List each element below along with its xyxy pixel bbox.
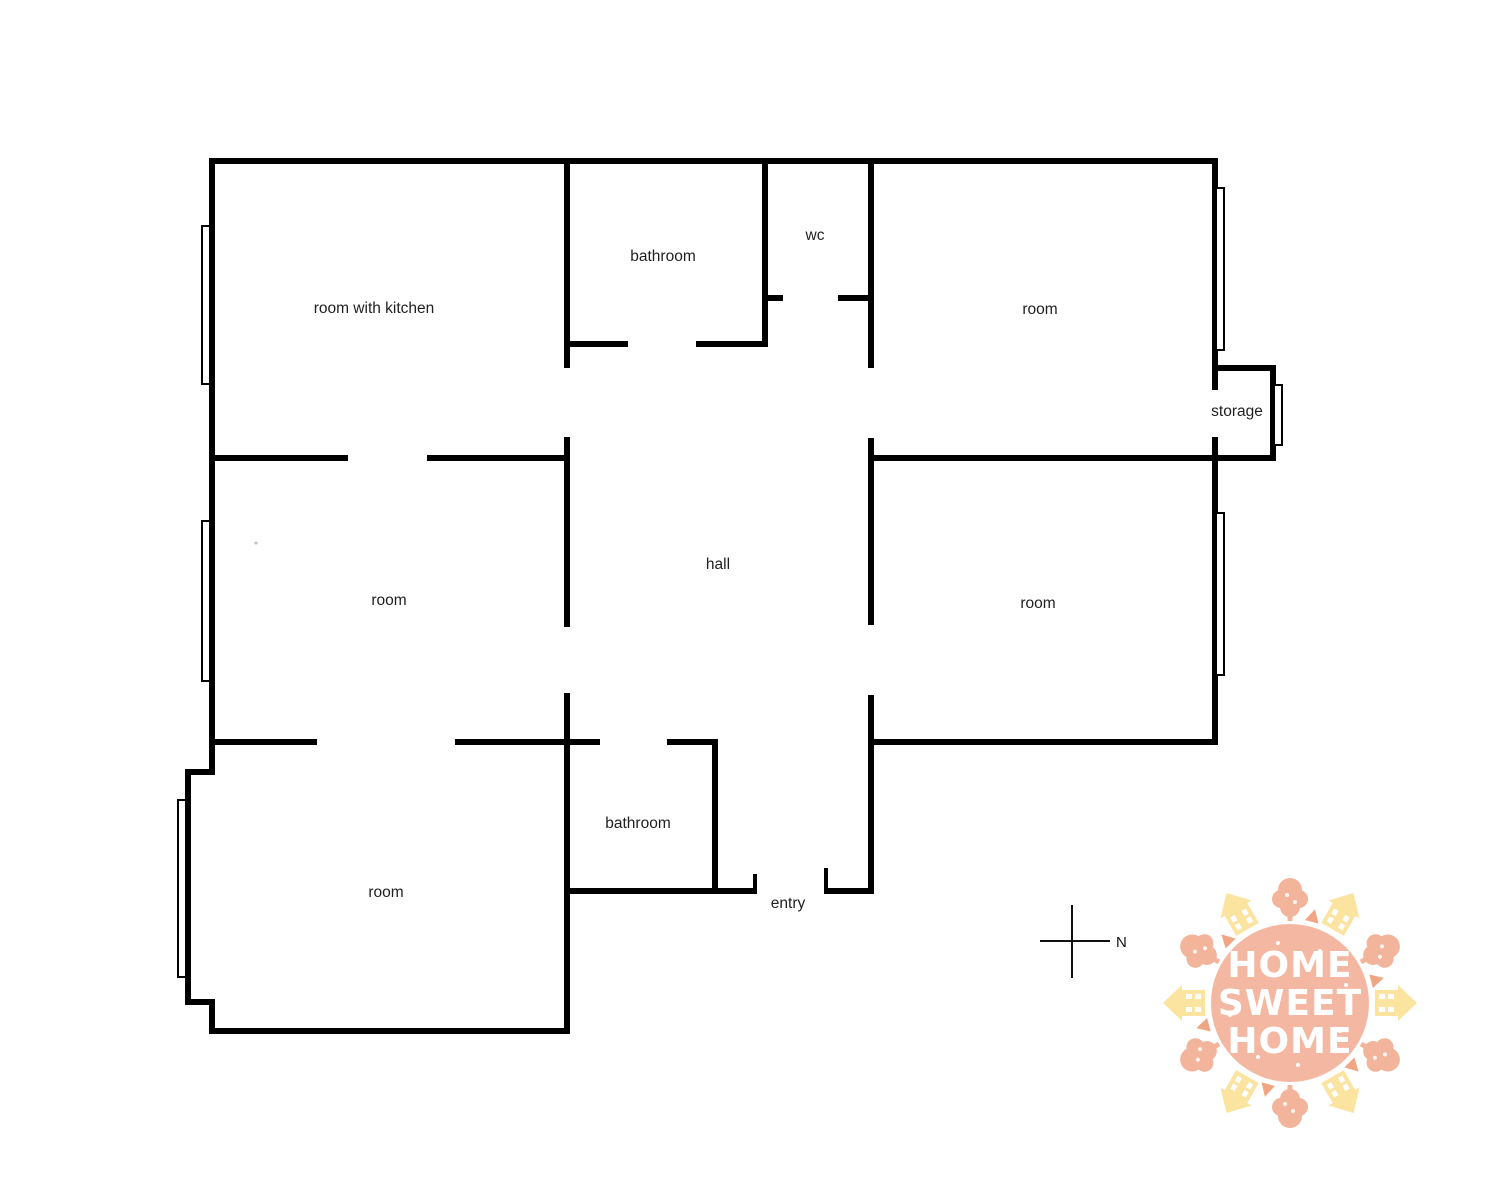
wall-storage-top	[1212, 365, 1276, 371]
house-icon	[1211, 884, 1263, 938]
wall-mid-left-b	[427, 455, 570, 461]
label-hall: hall	[706, 556, 730, 573]
wall-entry-bottom-left	[564, 888, 757, 894]
label-wc: wc	[805, 227, 825, 244]
wall-wc-door-left	[762, 295, 783, 301]
walls	[185, 158, 1276, 1034]
sun-ray-icon	[1258, 1082, 1275, 1098]
window-storage	[1274, 385, 1282, 445]
wall-bottom-right-room	[868, 739, 1218, 745]
wall-bathroom-top-bottom-right	[696, 341, 768, 347]
room-labels: room with kitchen bathroom wc room stora…	[314, 227, 1263, 912]
label-room-middle-right: room	[1020, 595, 1055, 612]
wall-hall-right-1	[868, 158, 874, 368]
wall-bathroom-top-bottom-left	[564, 341, 628, 347]
compass-north-label: N	[1116, 934, 1127, 951]
window-room-bottom-left	[178, 800, 186, 977]
house-icon	[1163, 985, 1205, 1021]
logo-line-1: HOME	[1227, 945, 1352, 986]
wall-wc-left	[762, 158, 768, 347]
compass: N	[1040, 905, 1127, 978]
wall-low-b	[455, 739, 600, 745]
house-icon	[1317, 884, 1369, 938]
label-storage: storage	[1211, 403, 1263, 420]
wall-low-a	[209, 739, 317, 745]
wall-mid-right	[868, 455, 1276, 461]
window-kitchen	[202, 226, 210, 384]
sun-ray-icon	[1194, 1018, 1210, 1035]
entry-door-tick-right	[824, 868, 828, 889]
label-bathroom-bottom: bathroom	[605, 815, 670, 832]
wall-hall-right-2	[868, 438, 874, 625]
wall-wc-door-right	[838, 295, 874, 301]
window-room-middle-left	[202, 521, 210, 681]
wall-entry-bottom-right	[824, 888, 874, 894]
window-room-top-right	[1216, 188, 1224, 350]
house-icon	[1375, 985, 1417, 1021]
wall-mid-left-a	[209, 455, 348, 461]
wall-hall-left-2	[564, 437, 570, 627]
wall-low-c	[667, 739, 718, 745]
wall-hall-right-3	[868, 695, 874, 894]
logo-line-2: SWEET	[1218, 983, 1362, 1024]
label-room-top-right: room	[1022, 301, 1057, 318]
tree-icon	[1272, 878, 1308, 921]
wall-bottom-left-room	[209, 1028, 570, 1034]
logo-home-sweet-home: HOME SWEET HOME	[1163, 878, 1417, 1128]
house-icon	[1211, 1068, 1263, 1122]
logo-line-3: HOME	[1227, 1021, 1352, 1062]
wall-hall-left-1	[564, 158, 570, 368]
tree-icon	[1272, 1085, 1308, 1128]
wall-top	[209, 158, 1218, 164]
floorplan-canvas: room with kitchen bathroom wc room stora…	[0, 0, 1494, 1200]
entry-door-tick-left	[753, 874, 757, 889]
wall-bathroom-bottom-right	[712, 739, 718, 894]
label-bathroom-top: bathroom	[630, 248, 695, 265]
sun-ray-icon	[1369, 971, 1385, 988]
label-room-with-kitchen: room with kitchen	[314, 300, 435, 317]
label-room-bottom-left: room	[368, 884, 403, 901]
label-entry: entry	[771, 895, 806, 912]
label-room-middle-left: room	[371, 592, 406, 609]
house-icon	[1317, 1068, 1369, 1122]
window-room-middle-right	[1216, 513, 1224, 675]
logo-wordmark: HOME SWEET HOME	[1218, 945, 1362, 1062]
speck-artifact	[255, 542, 258, 545]
sun-ray-icon	[1305, 907, 1322, 923]
